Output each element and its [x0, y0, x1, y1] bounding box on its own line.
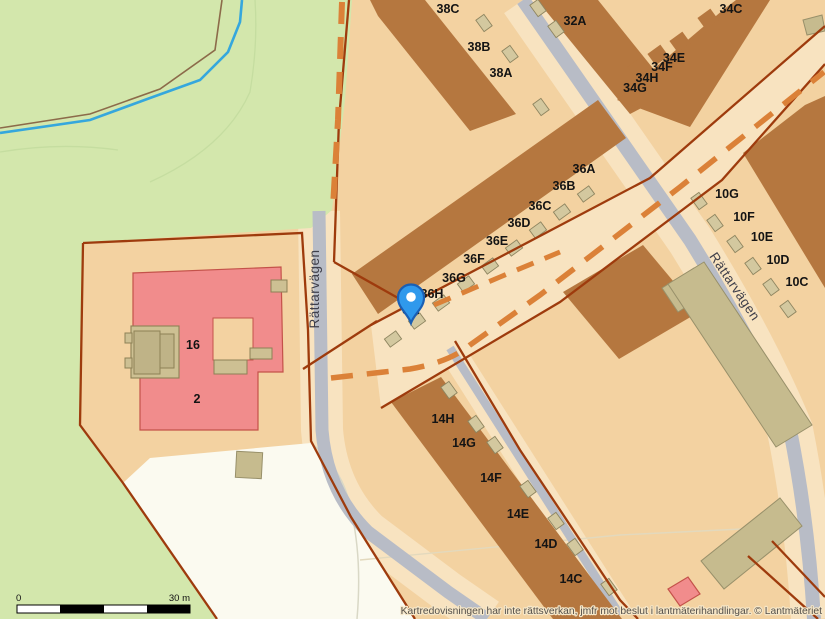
attribution-text: Kartredovisningen har inte rättsverkan, … — [401, 606, 823, 617]
house-number-label: 10G — [715, 187, 739, 201]
house-number-label: 14G — [452, 436, 476, 450]
school-shed — [214, 360, 247, 374]
house-number-label: 36C — [529, 199, 552, 213]
pin-center-dot — [406, 292, 416, 302]
house-number-label: 38B — [468, 40, 491, 54]
house-number-label: 34C — [720, 2, 743, 16]
house-number-label: 36D — [508, 216, 531, 230]
house-number-label: 36G — [442, 271, 466, 285]
school-shed — [250, 348, 272, 359]
school-courtyard — [213, 318, 253, 360]
map-canvas[interactable]: RättarvägenRättarvägen 38C38B38A32A34C34… — [0, 0, 825, 619]
map-viewport[interactable]: RättarvägenRättarvägen 38C38B38A32A34C34… — [0, 0, 825, 619]
street-name-label: Rättarvägen — [307, 249, 322, 328]
school-shed — [271, 280, 287, 292]
scale-start-label: 0 — [16, 593, 21, 604]
house-number-label: 10E — [751, 230, 773, 244]
house-number-label: 36F — [463, 252, 485, 266]
house-number-label: 14H — [432, 412, 455, 426]
house-number-label: 10C — [786, 275, 809, 289]
building-shed-field — [235, 451, 262, 478]
house-number-label: 34G — [623, 81, 647, 95]
house-number-label: 2 — [194, 392, 201, 406]
house-number-label: 32A — [564, 14, 587, 28]
house-number-label: 38C — [437, 2, 460, 16]
house-number-label: 10F — [733, 210, 755, 224]
scale-end-label: 30 m — [169, 593, 190, 604]
house-number-label: 36E — [486, 234, 508, 248]
school-annex-inner — [160, 334, 174, 368]
house-number-label: 36A — [573, 162, 596, 176]
house-number-label: 10D — [767, 253, 790, 267]
house-number-label: 36B — [553, 179, 576, 193]
house-number-label: 14C — [560, 572, 583, 586]
house-number-label: 16 — [186, 338, 200, 352]
school-annex-inner — [134, 331, 160, 374]
house-number-label: 14D — [535, 537, 558, 551]
house-number-label: 14E — [507, 507, 529, 521]
house-number-label: 38A — [490, 66, 513, 80]
house-number-label: 14F — [480, 471, 502, 485]
